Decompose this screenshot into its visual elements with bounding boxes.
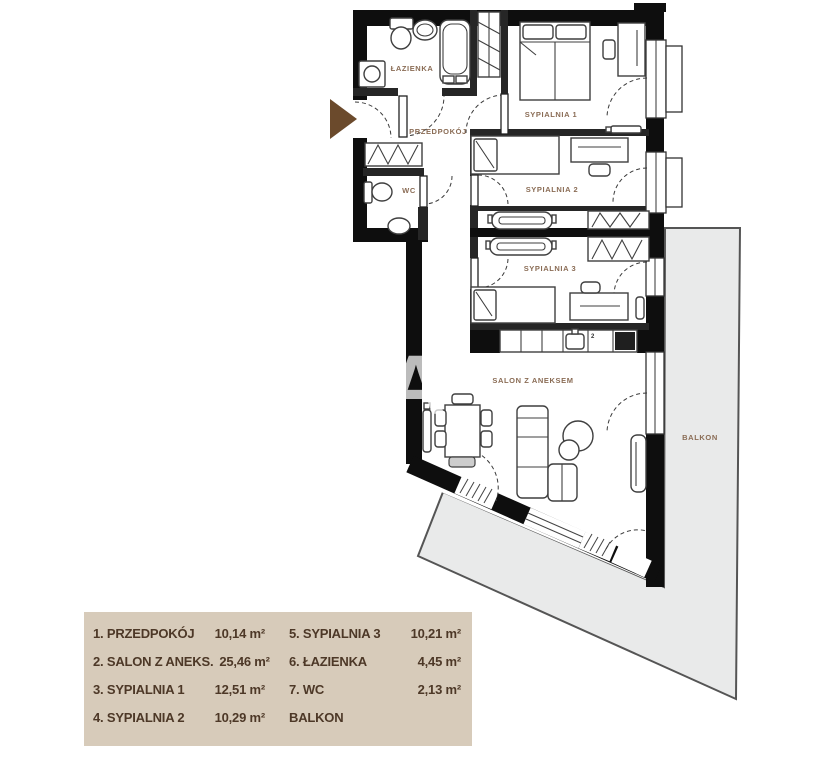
bathtub-icon	[440, 20, 470, 84]
legend-item: 1. PRZEDPOKÓJ 10,14 m²	[93, 627, 265, 641]
legend-item-label: 5. SYPIALNIA 3	[289, 627, 380, 641]
legend-item: 5. SYPIALNIA 3 10,21 m²	[289, 627, 461, 641]
legend-item-label: 1. PRZEDPOKÓJ	[93, 627, 194, 641]
legend-item-area: 2,13 m²	[412, 683, 461, 697]
washing-machine-icon	[359, 61, 385, 87]
wardrobe-icon	[478, 12, 500, 77]
desk-icon	[570, 293, 628, 320]
desk-icon	[618, 23, 645, 76]
single-bed-icon	[471, 136, 559, 174]
toilet-icon	[390, 18, 413, 49]
legend-item: 6. ŁAZIENKA 4,45 m²	[289, 655, 461, 669]
room-label-wc: WC	[402, 186, 416, 195]
balcony-door-salon	[646, 352, 664, 434]
legend-item-label: 2. SALON Z ANEKS.	[93, 655, 213, 669]
legend-item-label: 6. ŁAZIENKA	[289, 655, 367, 669]
sypialnia2-door-leaf	[471, 175, 478, 206]
tv-unit-icon	[631, 435, 646, 492]
room-label-sypialnia2: SYPIALNIA 2	[526, 185, 579, 194]
balcony-door-sypialnia3	[646, 258, 664, 296]
legend-item-label: BALKON	[289, 711, 343, 725]
room-label-salon: SALON Z ANEKSEM	[492, 376, 573, 385]
room-label-sypialnia1: SYPIALNIA 1	[525, 110, 578, 119]
legend-item: BALKON	[289, 711, 461, 725]
legend-column-2: 5. SYPIALNIA 3 10,21 m² 6. ŁAZIENKA 4,45…	[289, 627, 461, 746]
floorplan-page: BALKON	[0, 0, 814, 760]
legend-item: 7. WC 2,13 m²	[289, 683, 461, 697]
radiator-icon	[488, 212, 556, 229]
legend-item-area: 10,21 m²	[405, 627, 461, 641]
sypialnia3-door-leaf	[471, 258, 478, 289]
wardrobe-icon	[588, 237, 649, 261]
sink-icon	[413, 20, 437, 40]
entrance-arrow-icon	[330, 99, 357, 139]
radiator-icon	[486, 238, 556, 255]
legend-item-area: 10,29 m²	[209, 711, 265, 725]
cooktop-icon	[615, 332, 635, 350]
legend-panel: 1. PRZEDPOKÓJ 10,14 m² 2. SALON Z ANEKS.…	[84, 612, 472, 746]
legend-item: 3. SYPIALNIA 1 12,51 m²	[93, 683, 265, 697]
legend-item-area: 4,45 m²	[412, 655, 461, 669]
wardrobe-icon	[588, 211, 649, 229]
legend-item-area	[455, 711, 461, 725]
radiator-icon	[606, 126, 641, 133]
desk-icon	[571, 138, 628, 162]
legend-item: 4. SYPIALNIA 2 10,29 m²	[93, 711, 265, 725]
kitchen-annex: 2	[500, 329, 637, 352]
single-bed-icon	[471, 287, 555, 323]
legend-item-label: 7. WC	[289, 683, 324, 697]
legend-item: 2. SALON Z ANEKS. 25,46 m²	[93, 655, 265, 669]
legend-item-area: 12,51 m²	[209, 683, 265, 697]
room-label-przedpokoj: PRZEDPOKÓJ	[409, 127, 467, 136]
window-sypialnia2	[646, 152, 682, 213]
window-sypialnia1	[646, 40, 682, 118]
legend-item-label: 4. SYPIALNIA 2	[93, 711, 184, 725]
watermark: SA	[316, 338, 461, 432]
entrance-door-leaf	[399, 96, 407, 137]
room-label-sypialnia3: SYPIALNIA 3	[524, 264, 577, 273]
room-label-lazienka: ŁAZIENKA	[391, 64, 434, 73]
chair-icon	[581, 282, 600, 293]
toilet-icon	[364, 182, 392, 203]
radiator-icon	[636, 297, 644, 319]
legend-item-label: 3. SYPIALNIA 1	[93, 683, 184, 697]
wc-door-leaf	[420, 176, 427, 207]
legend-column-1: 1. PRZEDPOKÓJ 10,14 m² 2. SALON Z ANEKS.…	[93, 627, 265, 746]
room-label-balkon: BALKON	[682, 433, 718, 442]
sypialnia1-door-leaf	[501, 94, 508, 134]
legend-item-area: 25,46 m²	[213, 655, 269, 669]
double-bed-icon	[520, 22, 590, 100]
sink-icon	[388, 218, 410, 234]
legend-item-area: 10,14 m²	[209, 627, 265, 641]
wardrobe-icon	[365, 143, 422, 166]
chair-icon	[589, 164, 610, 176]
nightstand-icon	[603, 40, 615, 59]
